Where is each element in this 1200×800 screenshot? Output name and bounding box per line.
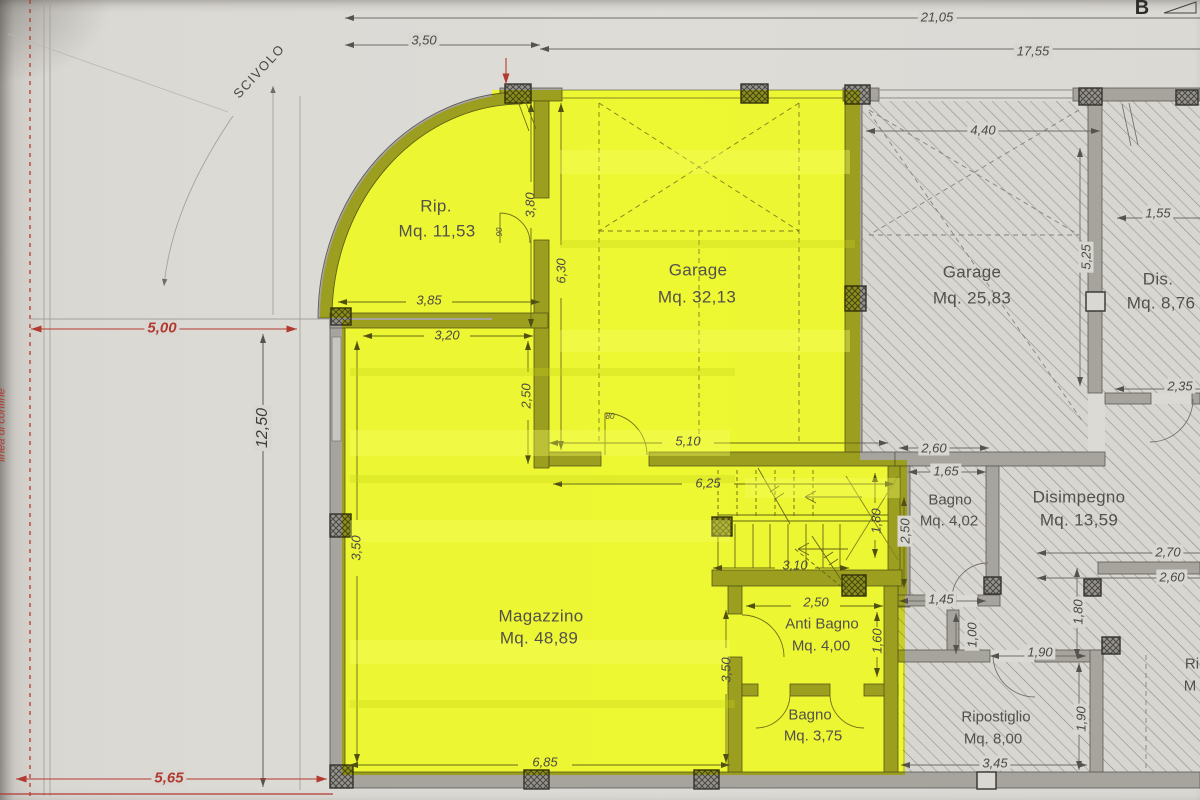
dim-stairs-depth: 1,80 [870,508,883,533]
room-antibagno-area: Mq. 4,00 [792,639,850,654]
door-width-90: 90 [496,228,504,237]
room-partial-area: M [1184,679,1197,694]
dim-bottom-red: 5,65 [151,770,186,787]
dim-niche-width: 1,00 [965,619,980,650]
dim-mag-top: 3,20 [434,329,459,342]
room-bagno2-area: Mq. 3,75 [784,729,842,744]
dim-side-total: 12,50 [254,405,272,451]
dim-antibagno-depth: 1,60 [871,628,884,653]
dim-dis-width: 1,55 [1142,206,1173,221]
dim-corridor: 6,25 [695,477,720,490]
section-marker: B [1135,0,1149,18]
dim-niche-depth: 1,80 [1071,596,1086,627]
dim-mag-left: 3,50 [350,535,363,560]
dim-garage2-depth: 5,25 [1079,241,1094,272]
room-garage2-area: Mq. 25,83 [933,290,1011,307]
room-garage1-area: Mq. 32,13 [658,289,736,306]
room-partial-name: Ri [1185,657,1199,672]
dim-garage2-door: 4,40 [967,123,998,138]
room-bagno1-name: Bagno [928,493,971,508]
dim-mag-right: 3,50 [720,657,733,682]
dim-ripo-bottom: 3,45 [979,756,1010,771]
room-ripostiglio-area: Mq. 8,00 [964,732,1022,747]
dim-bagno1-width: 1,65 [930,464,961,479]
dim-dis2-w2: 2,60 [1156,570,1187,585]
room-ripostiglio-name: Ripostiglio [961,710,1030,725]
room-bagno2-name: Bagno [788,708,831,723]
room-rip-area: Mq. 11,53 [398,223,475,240]
dim-mag-bottom: 6,85 [532,756,557,769]
room-bagno1-area: Mq. 4,02 [920,514,978,529]
room-disimpegno-name: Disimpegno [1033,489,1126,506]
dim-dis2-w1: 2,70 [1152,545,1183,560]
dim-total-width: 21,05 [918,10,957,25]
dim-antibagno-width: 2,50 [803,596,828,609]
dim-bagno1-depth: 2,50 [898,515,913,546]
dim-rip-depth: 3,80 [524,192,537,217]
dim-garage1-width: 5,10 [675,435,700,448]
room-rip-name: Rip. [420,198,451,215]
room-disimpegno-area: Mq. 13,59 [1040,512,1118,529]
dim-setback-red: 5,00 [144,320,179,337]
room-dis-name: Dis. [1143,271,1173,288]
dim-inner-width: 17,55 [1014,44,1053,59]
room-dis-area: Mq. 8,76 [1127,295,1196,312]
labels-layer: 21,05 3,50 17,55 B SCIVOLO 4,40 1,55 5,2… [0,0,1200,800]
room-antibagno-name: Anti Bagno [785,617,858,632]
dim-ripo-door: 1,90 [1024,645,1055,660]
dim-bagno1-outer: 2,60 [918,441,949,456]
door-width-80: 80 [606,413,615,421]
dim-dis-bottom: 2,35 [1164,379,1195,394]
room-magazzino-name: Magazzino [499,608,584,625]
dim-stairs-width: 3,10 [782,559,807,572]
floorplan-scan: 21,05 3,50 17,55 B SCIVOLO 4,40 1,55 5,2… [0,0,1200,800]
dim-left-offset: 3,50 [408,33,439,48]
dim-bagno1-bottom: 1,45 [925,592,956,607]
dim-ripo-depth: 1,90 [1074,703,1089,734]
room-magazzino-area: Mq. 48,89 [500,630,578,647]
room-garage2-name: Garage [943,264,1002,281]
boundary-label: linea di confine [0,388,8,461]
dim-mag-step: 2,50 [520,383,533,408]
room-garage1-name: Garage [669,262,728,279]
dim-garage1-depth: 6,30 [555,258,568,283]
ramp-label: SCIVOLO [231,42,287,101]
dim-rip-width: 3,85 [416,294,441,307]
